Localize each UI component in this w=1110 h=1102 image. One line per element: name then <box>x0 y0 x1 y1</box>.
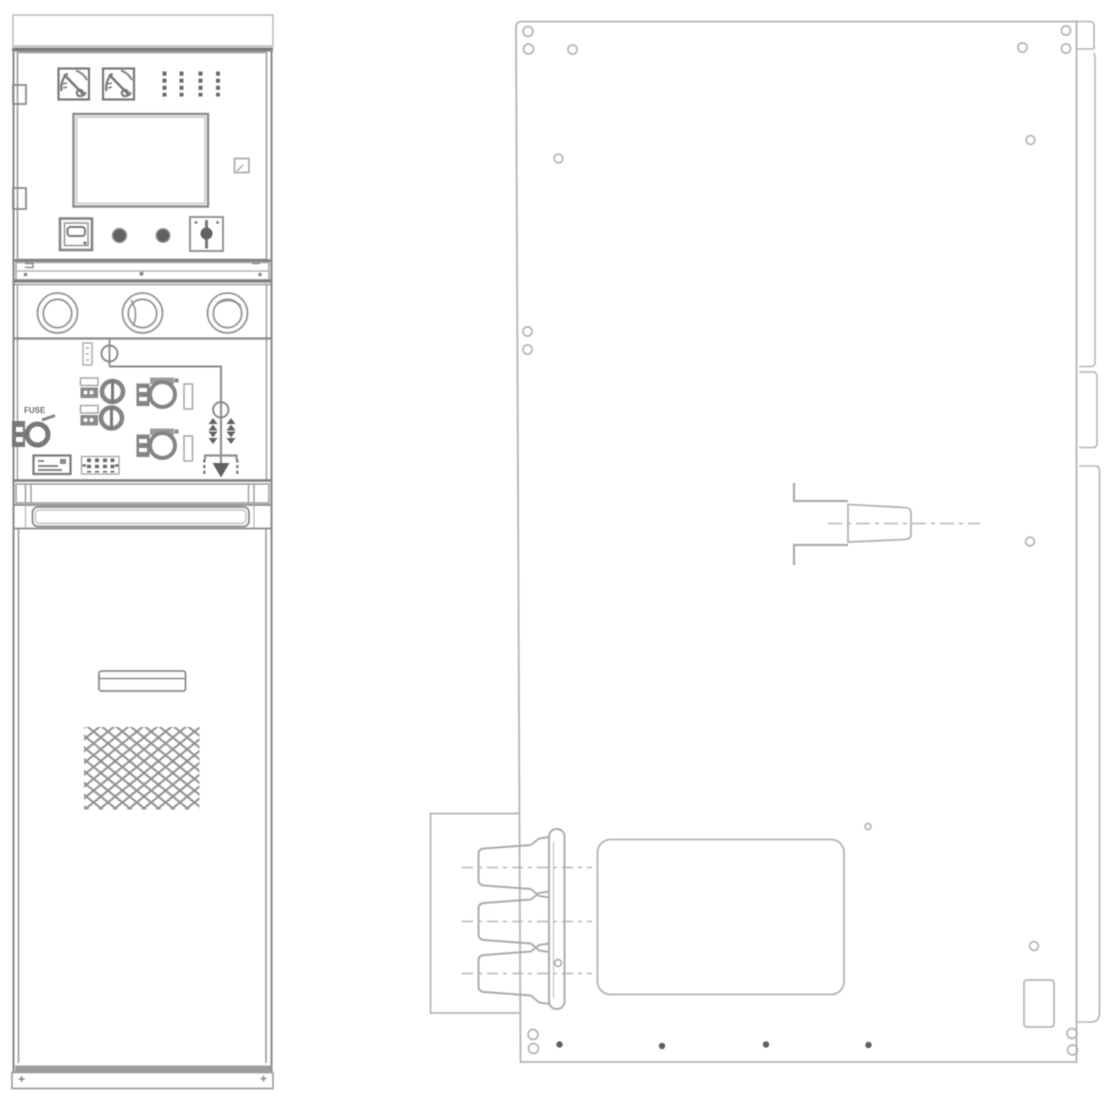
svg-text:FUSE: FUSE <box>24 406 46 415</box>
